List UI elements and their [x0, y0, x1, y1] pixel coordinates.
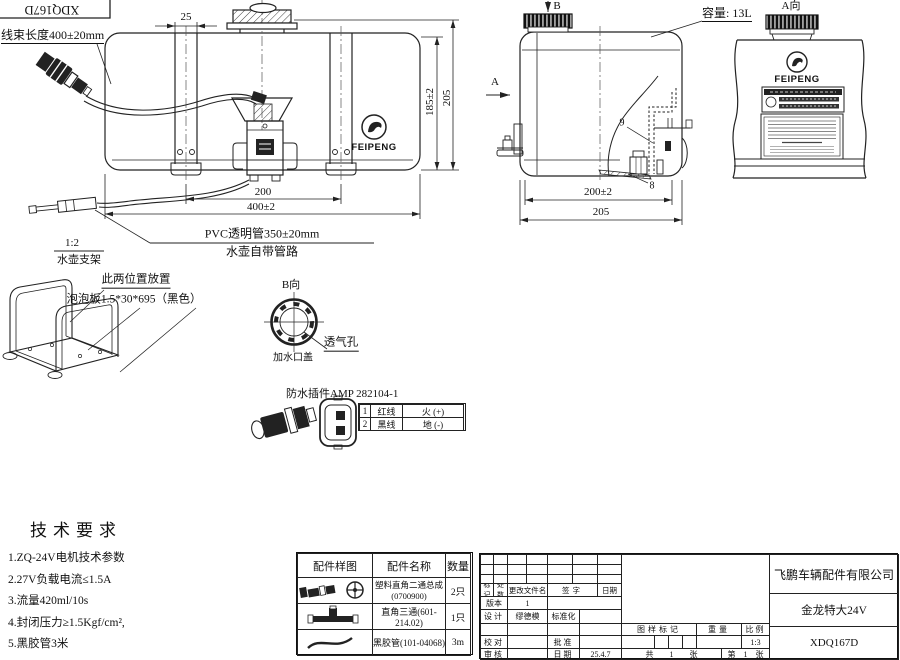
tank-piping-label: 水壶自带管路 — [226, 245, 298, 258]
pin-1-wire: 红线 — [370, 404, 403, 418]
connector-pinout-table: 1 红线 火 (+) 2 黑线 地 (-) — [358, 403, 466, 431]
dim-200-side: 200±2 — [584, 186, 612, 198]
part-3-image — [297, 629, 373, 656]
dim-25: 25 — [181, 11, 192, 23]
sheet-no: 第 1 张 — [721, 648, 770, 660]
blank-cell — [507, 648, 548, 660]
side-view — [497, 14, 702, 183]
a-view — [733, 15, 866, 178]
part-2-image — [297, 603, 373, 630]
filler-cap-label: 加水口盖 — [273, 353, 313, 364]
pin-2-wire: 黑线 — [370, 417, 403, 431]
tee-fitting-icon — [298, 604, 370, 628]
dim-185: 185±2 — [424, 88, 436, 116]
pin-1-role: 火 (+) — [402, 404, 464, 418]
blank-cell — [507, 635, 548, 649]
blank-cell — [682, 635, 697, 649]
tech-item: 4.封闭压力≥1.5Kgf/cm², — [8, 614, 125, 630]
waterproof-connector-detail — [249, 396, 356, 449]
audit-label: 审核 — [480, 648, 508, 660]
arrow-b-label: B — [553, 0, 560, 12]
title-block: 标记 处数 更改文件名 签字 日期 版本 1 设计 缪德模 标准化 校对 批准 … — [479, 553, 898, 659]
blank-cell — [579, 635, 622, 649]
capacity-label: 容量: 13L — [702, 7, 752, 22]
sheet-total: 共 1 张 — [621, 648, 722, 660]
placement-note: 此两位置放置 — [102, 274, 171, 289]
pump-assembly — [232, 91, 297, 181]
part-3-qty: 3m — [445, 629, 471, 656]
b-view-label: B向 — [282, 279, 300, 291]
design-label: 设计 — [480, 609, 508, 624]
pin-2-role: 地 (-) — [402, 417, 464, 431]
blank-cell — [547, 596, 622, 610]
engineering-drawing-sheet: XDQ167D 线束长度400±20mm 25 185±2 205 200 40… — [0, 0, 900, 660]
parts-header-image: 配件样图 — [297, 553, 373, 578]
part-3-name: 黑胶管(101-04068) — [372, 629, 446, 656]
parts-header-qty: 数量 — [445, 553, 471, 578]
feipeng-logo-a-view — [787, 52, 807, 72]
front-dimensions — [105, 20, 459, 219]
standardization-label: 标准化 — [547, 609, 580, 624]
vent-hole-label: 透气孔 — [324, 337, 359, 352]
proof-label: 校对 — [480, 635, 508, 649]
drawing-number: XDQ167D — [769, 626, 899, 660]
tech-requirements-title: 技术要求 — [30, 516, 122, 541]
grid-line — [507, 554, 508, 584]
grid-line — [572, 554, 573, 584]
foam-note: 泡泡板1.5*30*695（黑色） — [66, 294, 201, 307]
dim-200-front: 200 — [255, 186, 272, 198]
dim-205-side: 205 — [593, 206, 610, 218]
a-view-label: A向 — [782, 0, 801, 12]
grid-line — [547, 554, 548, 584]
change-col-date: 日期 — [597, 583, 622, 597]
grid-line — [493, 554, 494, 584]
part-2-name: 直角三通(601-214.02) — [372, 603, 446, 630]
code-box-text: XDQ167D — [25, 2, 80, 16]
dim-400: 400±2 — [247, 201, 275, 213]
grid-line — [597, 554, 598, 584]
date-value: 25.4.7 — [579, 648, 622, 660]
product-name: 金龙特大24V — [769, 593, 899, 627]
blank-cell — [668, 635, 683, 649]
tech-item: 1.ZQ-24V电机技术参数 — [8, 549, 125, 565]
version-value: 1 — [507, 596, 548, 610]
bracket-name: 水壶支架 — [57, 254, 101, 266]
grid-line — [480, 574, 622, 575]
callout-9: 9 — [620, 118, 625, 129]
grid-line — [526, 554, 527, 584]
brand-label — [762, 87, 844, 112]
company-name: 飞鹏车辆配件有限公司 — [769, 554, 899, 594]
feipeng-logo-front — [362, 115, 386, 139]
tech-item: 2.27V负载电流≤1.5A — [8, 571, 125, 587]
stamp-area — [621, 554, 770, 624]
version-label: 版本 — [480, 596, 508, 610]
part-1-name: 塑料直角二通总成 (0700900) — [372, 577, 446, 604]
dim-205-front: 205 — [441, 90, 453, 107]
b-view-cap-detail — [264, 292, 327, 352]
parts-header-name: 配件名称 — [372, 553, 446, 578]
change-col-count: 处数 — [493, 583, 508, 597]
attention-label — [761, 114, 843, 159]
bracket-scale: 1:2 — [65, 237, 79, 249]
designer-name: 缪德模 — [507, 609, 548, 624]
date-label: 日期 — [547, 648, 580, 660]
arrow-a-label: A — [491, 76, 499, 88]
tech-item: 3.流量420ml/10s — [8, 592, 125, 608]
blank-cell — [579, 609, 622, 624]
change-record-blank — [480, 554, 622, 584]
approve-label: 批准 — [547, 635, 580, 649]
feipeng-text-front: FEIPENG — [351, 143, 396, 153]
tech-requirements-list: 1.ZQ-24V电机技术参数 2.27V负载电流≤1.5A 3.流量420ml/… — [8, 549, 125, 657]
cable-bottom — [29, 180, 249, 215]
blank-cell — [621, 635, 655, 649]
grid-line — [480, 564, 622, 565]
blank-cell — [696, 635, 742, 649]
parts-table: 配件样图 配件名称 数量 塑料直角二通总成 (0700900) 2只 直角三通(… — [296, 552, 473, 655]
elbow-fitting-icon — [298, 578, 370, 602]
tech-item: 5.黑胶管3米 — [8, 635, 125, 651]
waterproof-connector-title: 防水插件AMP 282104-1 — [286, 388, 398, 400]
part-1-image — [297, 577, 373, 604]
part-1-qty: 2只 — [445, 577, 471, 604]
change-col-file: 更改文件名 — [507, 583, 548, 597]
callout-8: 8 — [650, 181, 655, 192]
blank-cell — [654, 635, 669, 649]
change-col-sign: 签字 — [547, 583, 598, 597]
hose-icon — [298, 630, 370, 654]
part-2-qty: 1只 — [445, 603, 471, 630]
scale-value: 1:3 — [741, 635, 770, 649]
change-col-mark: 标记 — [480, 583, 494, 597]
harness-connector — [34, 50, 95, 101]
filler-cap-front — [227, 4, 297, 34]
feipeng-text-a-view: FEIPENG — [774, 75, 819, 85]
harness-length-label: 线束长度400±20mm — [1, 29, 104, 44]
pvc-tube-label: PVC透明管350±20mm — [205, 227, 320, 240]
